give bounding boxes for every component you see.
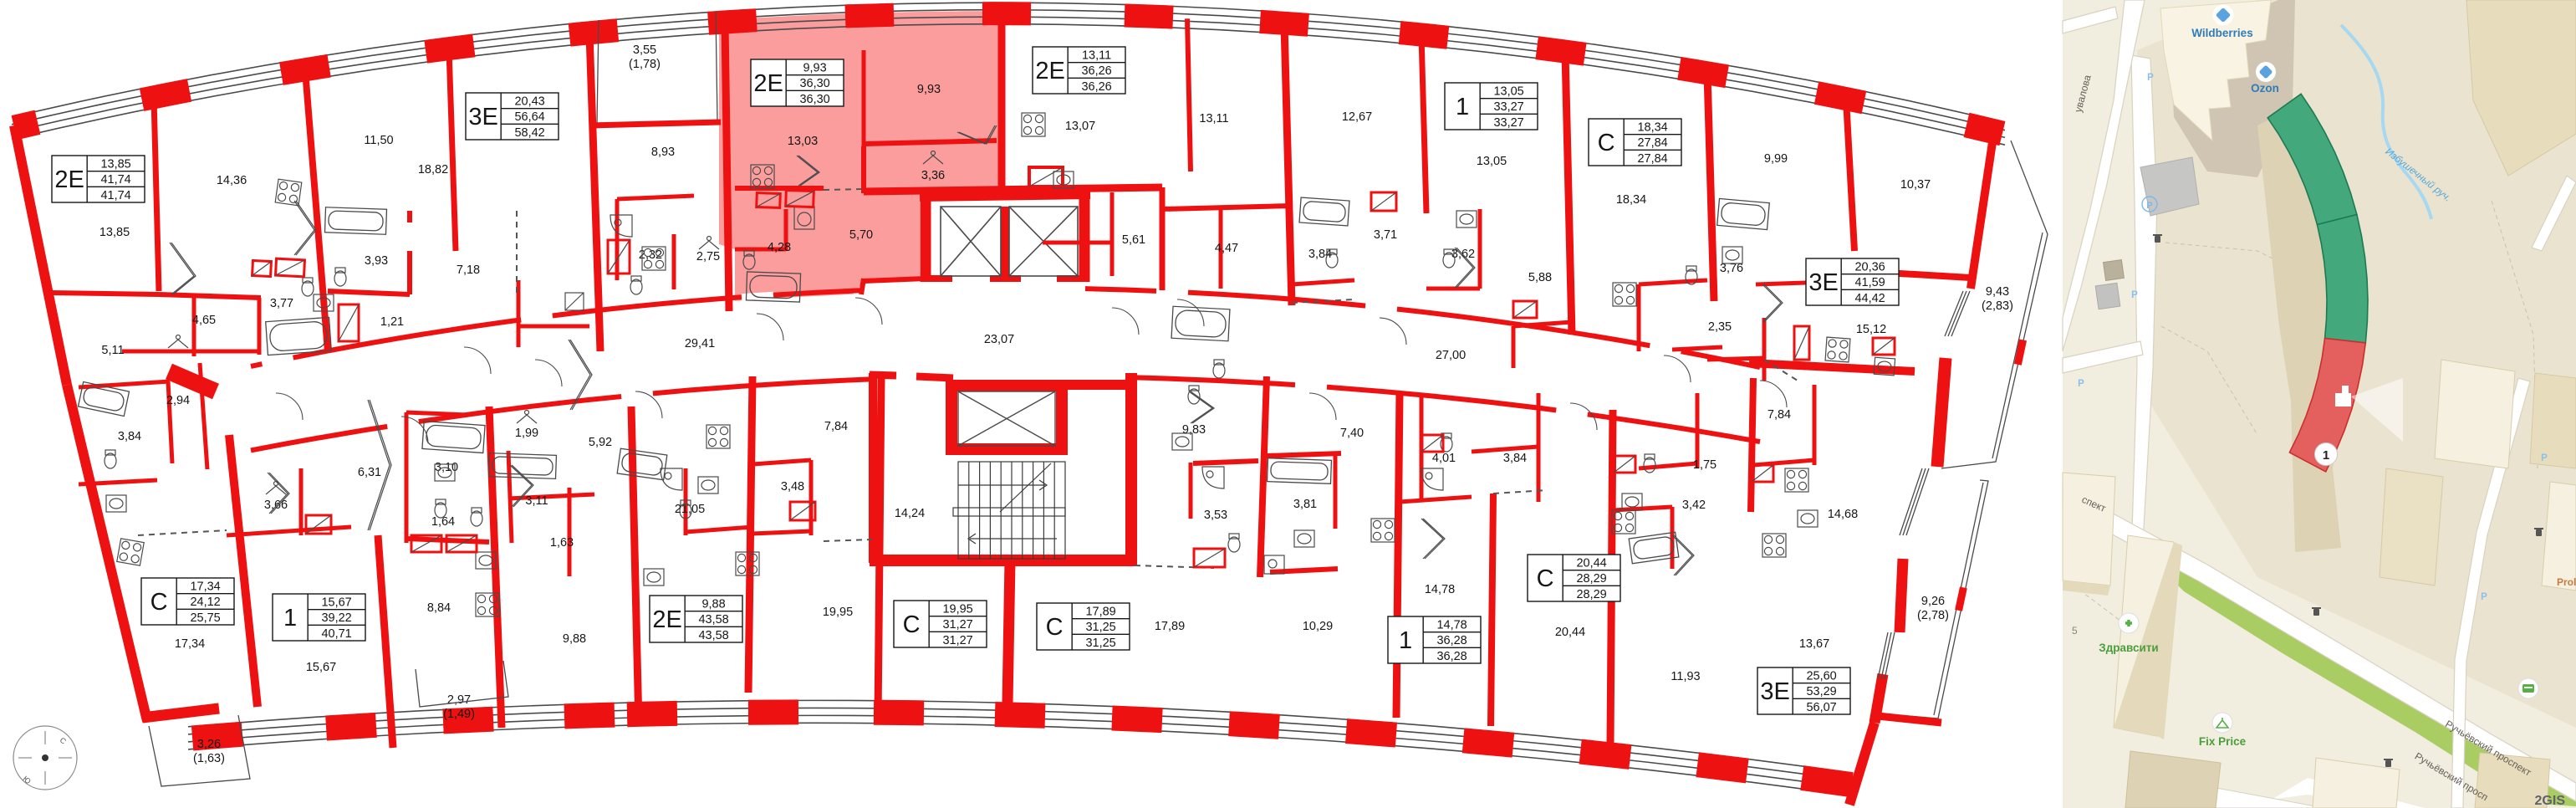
svg-text:(1,63): (1,63) — [193, 752, 225, 765]
svg-text:3,53: 3,53 — [1204, 509, 1227, 522]
svg-text:(1,49): (1,49) — [443, 708, 475, 721]
svg-text:36,30: 36,30 — [799, 77, 829, 90]
svg-text:P: P — [2078, 379, 2084, 389]
svg-text:7,40: 7,40 — [1340, 427, 1364, 440]
svg-text:(2,83): (2,83) — [1982, 299, 2013, 313]
svg-text:3,55: 3,55 — [633, 43, 656, 57]
svg-text:3,11: 3,11 — [525, 494, 548, 508]
svg-text:17,34: 17,34 — [190, 580, 220, 594]
svg-text:31,25: 31,25 — [1085, 637, 1115, 650]
svg-text:P: P — [2131, 290, 2138, 300]
svg-text:3Е: 3Е — [1808, 269, 1838, 296]
svg-text:5,11: 5,11 — [101, 344, 124, 357]
svg-text:27,84: 27,84 — [1637, 136, 1667, 150]
svg-text:1: 1 — [283, 605, 297, 632]
svg-text:23,07: 23,07 — [984, 333, 1014, 346]
svg-text:1,21: 1,21 — [380, 315, 404, 329]
svg-text:53,29: 53,29 — [1806, 685, 1836, 698]
svg-text:14,24: 14,24 — [895, 507, 925, 520]
svg-text:3,48: 3,48 — [781, 480, 804, 493]
svg-text:27,00: 27,00 — [1436, 349, 1466, 362]
svg-text:Здравсити: Здравсити — [2099, 642, 2158, 654]
svg-text:4,65: 4,65 — [192, 314, 216, 327]
svg-text:9,43: 9,43 — [1986, 285, 2009, 299]
svg-text:2,75: 2,75 — [696, 250, 720, 263]
svg-text:9,99: 9,99 — [1764, 152, 1788, 166]
svg-text:5,70: 5,70 — [849, 228, 873, 242]
svg-text:3,84: 3,84 — [1503, 452, 1527, 465]
svg-text:2,94: 2,94 — [166, 394, 190, 407]
svg-text:36,28: 36,28 — [1436, 650, 1467, 663]
svg-text:Prol: Prol — [2557, 576, 2576, 588]
svg-text:2,97: 2,97 — [447, 693, 471, 707]
svg-text:3,66: 3,66 — [264, 499, 288, 512]
svg-text:С: С — [903, 611, 921, 638]
svg-text:2Е: 2Е — [753, 70, 783, 97]
svg-text:28,29: 28,29 — [1576, 572, 1606, 586]
svg-text:3,36: 3,36 — [921, 169, 945, 182]
svg-text:33,27: 33,27 — [1493, 116, 1523, 130]
svg-text:19,95: 19,95 — [942, 603, 972, 616]
svg-text:33,27: 33,27 — [1493, 100, 1523, 114]
svg-text:9,88: 9,88 — [563, 632, 586, 646]
svg-text:С: С — [1598, 130, 1615, 156]
svg-text:11,50: 11,50 — [364, 134, 393, 147]
svg-text:36,28: 36,28 — [1436, 634, 1467, 647]
svg-text:44,42: 44,42 — [1854, 292, 1885, 305]
svg-text:Fix Price: Fix Price — [2199, 735, 2247, 748]
svg-text:56,07: 56,07 — [1806, 701, 1836, 714]
svg-text:3,81: 3,81 — [1293, 498, 1317, 511]
svg-text:20,44: 20,44 — [1576, 557, 1606, 570]
svg-text:2Е: 2Е — [54, 166, 84, 193]
svg-text:1: 1 — [1456, 94, 1469, 120]
svg-text:20,43: 20,43 — [514, 95, 544, 109]
svg-text:(2,78): (2,78) — [1917, 609, 1949, 622]
svg-text:С: С — [150, 589, 168, 616]
svg-text:С: С — [1046, 614, 1064, 641]
svg-text:5,88: 5,88 — [1528, 271, 1552, 284]
svg-text:15,67: 15,67 — [321, 596, 351, 610]
svg-text:36,30: 36,30 — [799, 93, 829, 106]
svg-text:18,34: 18,34 — [1616, 193, 1646, 207]
svg-text:1,75: 1,75 — [1693, 458, 1716, 472]
svg-text:P: P — [2146, 201, 2152, 211]
svg-text:3,84: 3,84 — [118, 430, 141, 443]
svg-text:36,26: 36,26 — [1081, 64, 1111, 78]
svg-text:13,11: 13,11 — [1082, 49, 1111, 63]
svg-text:8,93: 8,93 — [651, 146, 675, 159]
svg-text:Wildberries: Wildberries — [2191, 27, 2252, 39]
svg-text:3,77: 3,77 — [270, 297, 293, 310]
svg-text:27,84: 27,84 — [1637, 152, 1667, 166]
svg-text:31,27: 31,27 — [942, 618, 972, 632]
svg-text:58,42: 58,42 — [514, 126, 544, 140]
svg-text:3Е: 3Е — [468, 104, 497, 130]
svg-text:3,42: 3,42 — [1682, 499, 1706, 512]
svg-text:3,93: 3,93 — [365, 254, 388, 268]
svg-text:18,34: 18,34 — [1637, 121, 1667, 135]
svg-text:13,11: 13,11 — [1199, 112, 1228, 125]
svg-text:31,25: 31,25 — [1085, 621, 1115, 634]
svg-text:17,89: 17,89 — [1155, 620, 1185, 633]
svg-text:17,34: 17,34 — [175, 637, 205, 651]
svg-text:8,84: 8,84 — [427, 601, 451, 615]
svg-text:7,18: 7,18 — [457, 263, 480, 277]
svg-text:С: С — [1537, 565, 1554, 592]
svg-text:14,78: 14,78 — [1425, 583, 1455, 596]
svg-text:9,83: 9,83 — [1182, 423, 1206, 437]
svg-text:10,37: 10,37 — [1900, 178, 1931, 192]
svg-text:25,60: 25,60 — [1806, 670, 1836, 683]
svg-text:2Е: 2Е — [652, 606, 681, 633]
svg-text:20,36: 20,36 — [1854, 261, 1885, 274]
svg-text:56,64: 56,64 — [514, 110, 544, 124]
svg-text:5,92: 5,92 — [589, 436, 612, 449]
svg-text:(1,78): (1,78) — [629, 58, 661, 71]
svg-text:4,47: 4,47 — [1215, 242, 1238, 255]
svg-text:1: 1 — [1399, 627, 1412, 654]
svg-text:10,29: 10,29 — [1303, 620, 1333, 633]
svg-text:25,75: 25,75 — [190, 611, 220, 625]
svg-text:1: 1 — [2323, 448, 2329, 463]
svg-text:9,88: 9,88 — [701, 598, 725, 611]
svg-text:5: 5 — [2072, 625, 2078, 637]
svg-text:18,82: 18,82 — [418, 163, 448, 176]
svg-text:24,12: 24,12 — [190, 596, 220, 609]
svg-text:1,99: 1,99 — [515, 427, 538, 440]
svg-text:12,67: 12,67 — [1342, 110, 1372, 124]
svg-text:43,58: 43,58 — [698, 629, 728, 642]
svg-text:14,36: 14,36 — [217, 174, 247, 187]
svg-text:5,61: 5,61 — [1122, 233, 1145, 247]
svg-text:31,27: 31,27 — [942, 634, 972, 647]
svg-text:9,93: 9,93 — [917, 83, 941, 96]
svg-text:P: P — [2481, 592, 2487, 602]
svg-text:9,26: 9,26 — [1921, 595, 1945, 608]
svg-text:19,95: 19,95 — [823, 606, 853, 619]
svg-text:7,84: 7,84 — [824, 420, 848, 433]
svg-text:15,12: 15,12 — [1856, 323, 1886, 336]
svg-text:14,78: 14,78 — [1436, 619, 1467, 632]
svg-text:3,26: 3,26 — [197, 738, 221, 751]
svg-text:43,58: 43,58 — [698, 613, 728, 626]
svg-text:9,93: 9,93 — [803, 62, 826, 75]
svg-text:36,26: 36,26 — [1081, 80, 1111, 94]
svg-text:1,63: 1,63 — [550, 536, 574, 550]
svg-text:41,74: 41,74 — [100, 189, 130, 202]
svg-text:2Е: 2Е — [1035, 58, 1064, 84]
svg-text:14,68: 14,68 — [1828, 508, 1858, 521]
svg-text:7,84: 7,84 — [1767, 408, 1791, 422]
svg-text:2GIS: 2GIS — [2535, 794, 2566, 808]
svg-text:P: P — [2147, 73, 2154, 83]
svg-text:41,59: 41,59 — [1854, 276, 1885, 289]
svg-text:2,35: 2,35 — [1708, 320, 1732, 334]
svg-text:15,67: 15,67 — [306, 661, 336, 674]
svg-text:13,05: 13,05 — [1493, 85, 1523, 99]
svg-text:13,85: 13,85 — [99, 226, 130, 239]
svg-text:4,01: 4,01 — [1432, 452, 1456, 465]
svg-text:39,22: 39,22 — [321, 611, 351, 625]
svg-text:13,67: 13,67 — [1799, 637, 1829, 651]
svg-text:3,71: 3,71 — [1374, 228, 1397, 242]
svg-text:17,89: 17,89 — [1085, 606, 1115, 619]
svg-text:3Е: 3Е — [1760, 678, 1789, 705]
svg-text:6,31: 6,31 — [358, 466, 381, 479]
svg-text:13,05: 13,05 — [1477, 155, 1507, 168]
svg-text:11,93: 11,93 — [1671, 670, 1700, 683]
svg-text:13,85: 13,85 — [100, 158, 130, 171]
svg-text:13,07: 13,07 — [1065, 120, 1095, 133]
svg-text:4,28: 4,28 — [768, 241, 791, 254]
svg-text:40,71: 40,71 — [321, 627, 351, 641]
svg-text:P: P — [2541, 453, 2548, 463]
svg-text:41,74: 41,74 — [100, 173, 130, 187]
svg-text:28,29: 28,29 — [1576, 588, 1606, 601]
svg-text:29,41: 29,41 — [685, 337, 715, 350]
svg-text:13,03: 13,03 — [788, 135, 818, 148]
svg-text:Ozon: Ozon — [2251, 82, 2279, 95]
svg-text:20,44: 20,44 — [1555, 626, 1585, 639]
